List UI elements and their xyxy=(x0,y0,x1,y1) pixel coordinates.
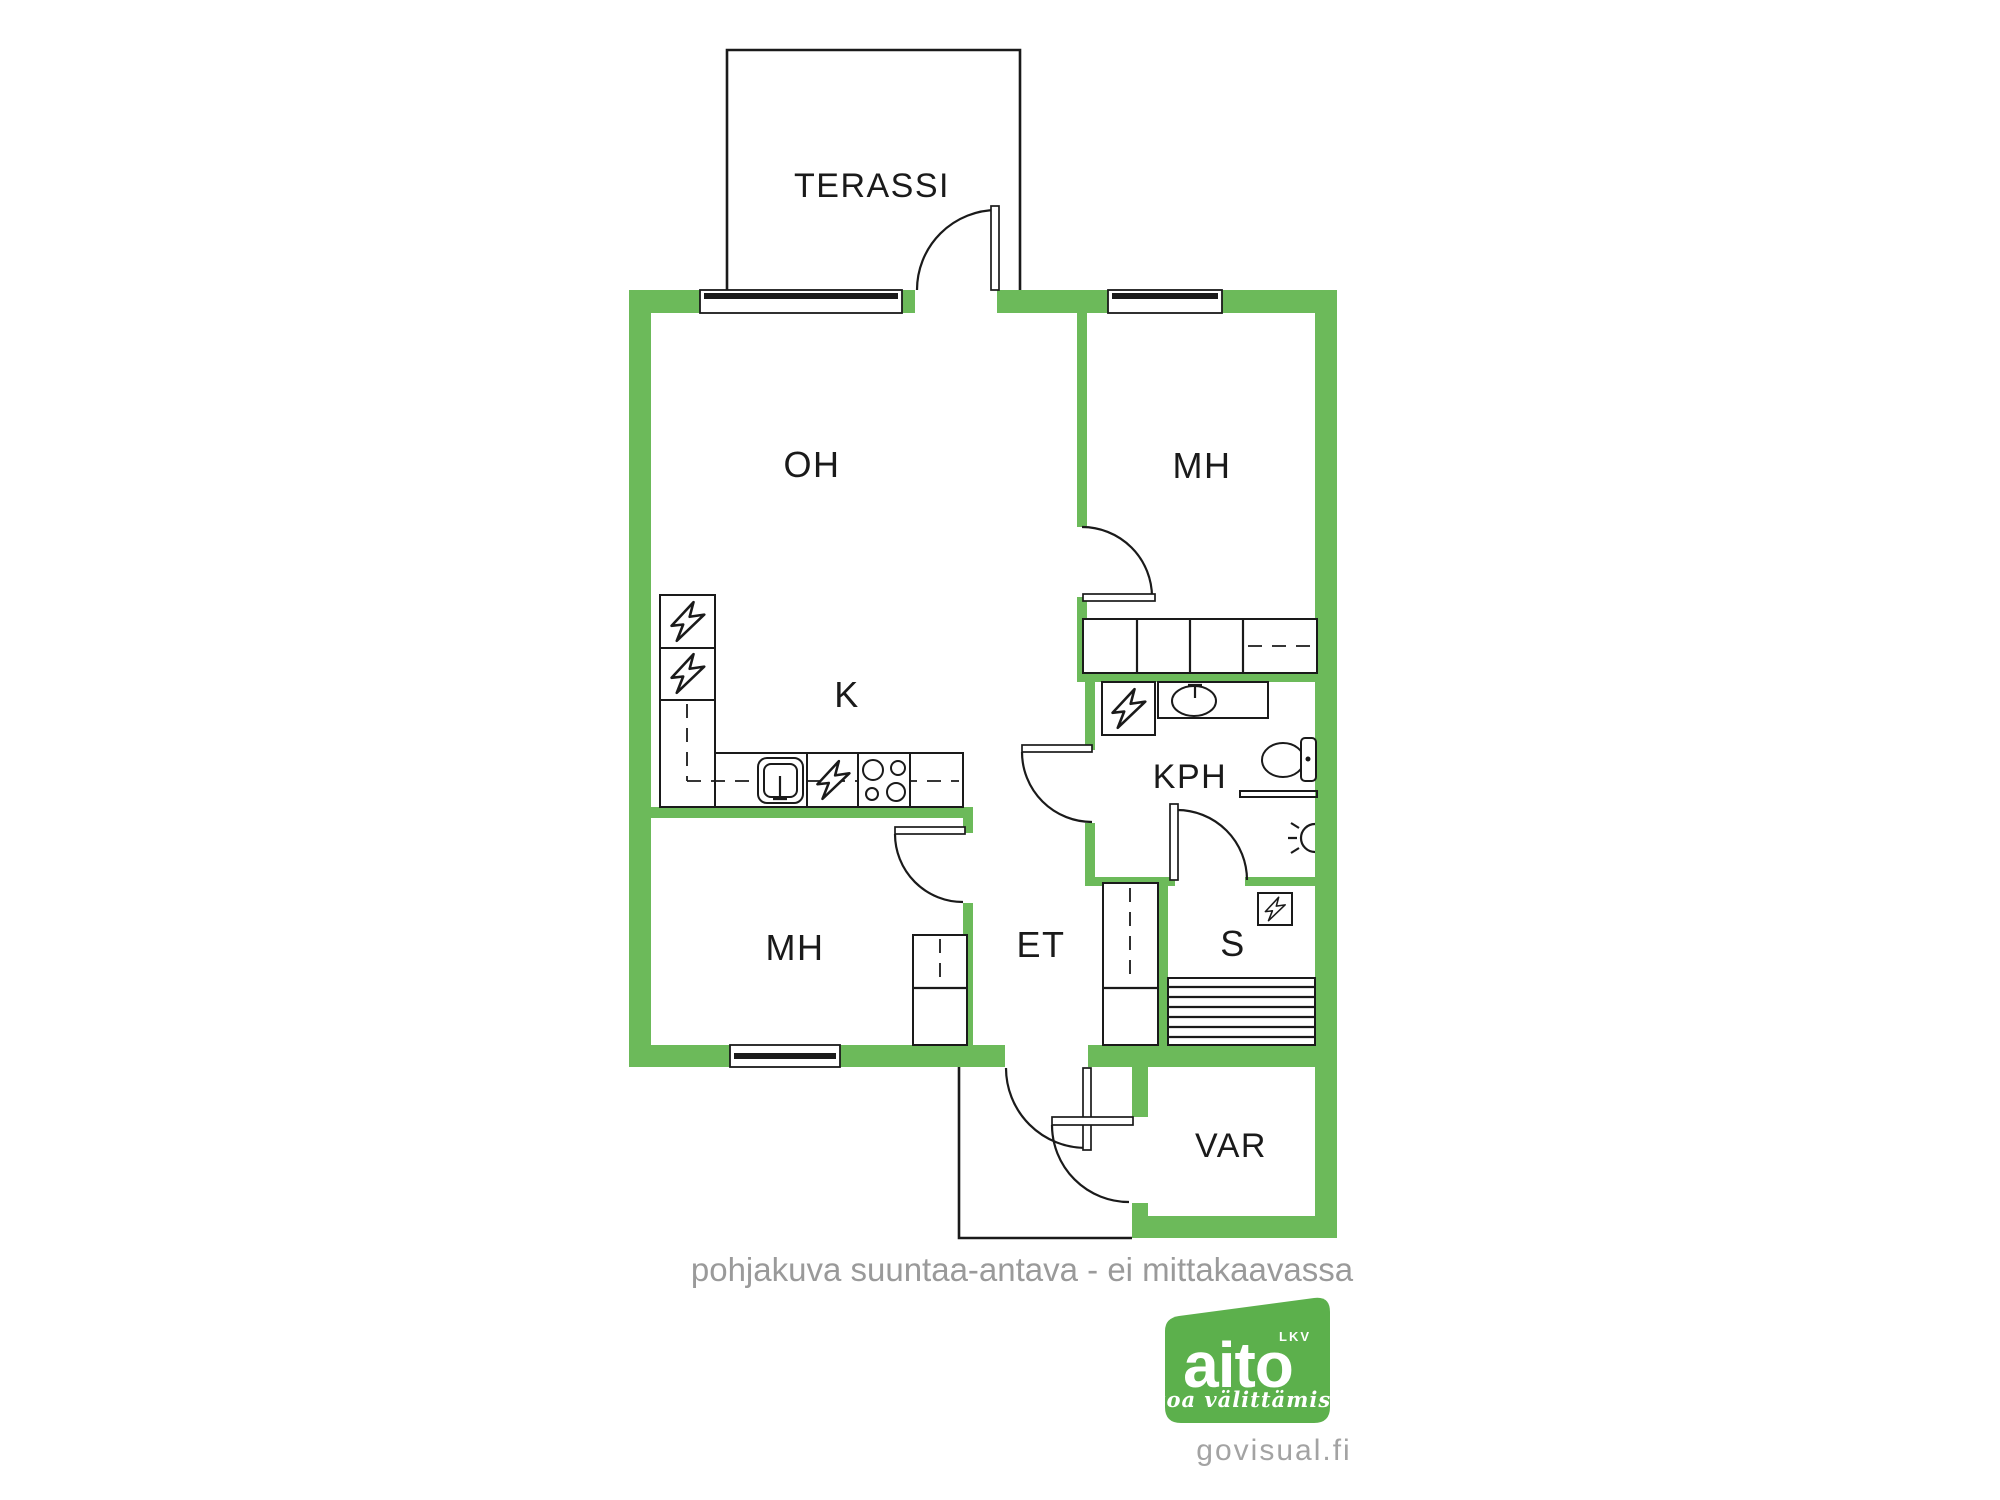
door-leaf xyxy=(991,206,999,290)
govisual-site-text: govisual.fi xyxy=(1196,1434,1351,1467)
towel-rail xyxy=(1240,791,1317,797)
door-arc xyxy=(1177,810,1247,880)
window-glass xyxy=(1112,293,1218,299)
porch-outline xyxy=(959,1067,1132,1238)
wall-bottom-c xyxy=(1088,1045,1315,1067)
wall-top-c xyxy=(997,290,1108,313)
wall-light-icon xyxy=(1288,823,1315,853)
wall-bathroom-sauna-b xyxy=(1245,877,1315,886)
door-bathroom xyxy=(1022,745,1092,822)
wall-storage-left-upper xyxy=(1132,1067,1148,1117)
label-living: OH xyxy=(784,444,841,485)
door-entrance xyxy=(1006,1068,1091,1150)
floorplan-page: TERASSI OH MH K KPH MH ET S VAR pohjakuv… xyxy=(0,0,2000,1500)
door-bedroom-bottom xyxy=(895,827,965,902)
logo-tagline-text: Aitoa välittämistä xyxy=(1128,1387,1357,1412)
wall-right xyxy=(1315,290,1337,1238)
window-bedroom-bottom xyxy=(730,1045,840,1067)
door-leaf xyxy=(895,827,965,834)
label-terrace: TERASSI xyxy=(794,167,950,205)
label-kitchen: K xyxy=(834,674,860,715)
label-bedroom-bottom: MH xyxy=(766,927,825,968)
logo-lkv-text: LKV xyxy=(1279,1329,1311,1344)
label-storage: VAR xyxy=(1195,1127,1267,1165)
door-leaf xyxy=(1022,745,1092,752)
door-arc xyxy=(895,834,963,902)
wardrobe-bedroom-bottom xyxy=(913,935,967,1045)
door-bedroom-top xyxy=(1082,527,1155,601)
door-arc xyxy=(1022,752,1092,822)
wall-top-b xyxy=(902,290,915,313)
wall-bathroom-left-lower xyxy=(1085,823,1095,886)
door-leaf xyxy=(1170,804,1178,880)
closet-bedroom-top xyxy=(1083,619,1317,673)
wall-bottom-a xyxy=(629,1045,730,1067)
window-living xyxy=(700,290,902,313)
kitchen-fixtures xyxy=(660,595,963,807)
wall-storage-left-lower xyxy=(1132,1203,1148,1216)
closet-entry xyxy=(1103,883,1158,1045)
toilet-flush xyxy=(1306,757,1311,762)
floorplan-drawing: TERASSI OH MH K KPH MH ET S VAR pohjakuv… xyxy=(0,0,2000,1500)
wall-sauna-left xyxy=(1158,886,1168,1045)
aito-logo: aito LKV Aitoa välittämistä xyxy=(1128,1298,1357,1423)
label-sauna: S xyxy=(1220,923,1246,964)
label-bedroom-top: MH xyxy=(1173,445,1232,486)
wall-bottom-b xyxy=(840,1045,1005,1067)
sauna-fixtures xyxy=(1168,893,1315,1045)
toilet-bowl xyxy=(1262,743,1304,777)
wall-bedroom-bathroom xyxy=(1077,673,1315,682)
door-terrace xyxy=(917,206,999,290)
wall-bathroom-left-upper xyxy=(1085,682,1095,750)
door-sauna xyxy=(1170,804,1247,880)
door-leaf xyxy=(1083,1068,1091,1150)
door-arc xyxy=(1006,1068,1086,1148)
wall-living-bedroom-upper xyxy=(1077,313,1087,527)
window-glass xyxy=(704,293,898,299)
window-bedroom-top xyxy=(1108,290,1222,313)
vanity-counter xyxy=(1158,682,1268,718)
wall-left xyxy=(629,290,651,1067)
door-leaf xyxy=(1052,1117,1133,1125)
wall-kitchen-bedroom xyxy=(651,807,973,818)
label-bathroom: KPH xyxy=(1153,758,1227,796)
wall-storage-bottom xyxy=(1132,1216,1337,1238)
door-leaf xyxy=(1083,594,1155,601)
door-arc xyxy=(1082,527,1152,597)
door-storage xyxy=(1052,1117,1133,1202)
door-arc xyxy=(917,210,997,290)
disclaimer-text: pohjakuva suuntaa-antava - ei mittakaava… xyxy=(691,1251,1354,1288)
label-entry: ET xyxy=(1016,924,1065,965)
window-glass xyxy=(734,1053,836,1059)
